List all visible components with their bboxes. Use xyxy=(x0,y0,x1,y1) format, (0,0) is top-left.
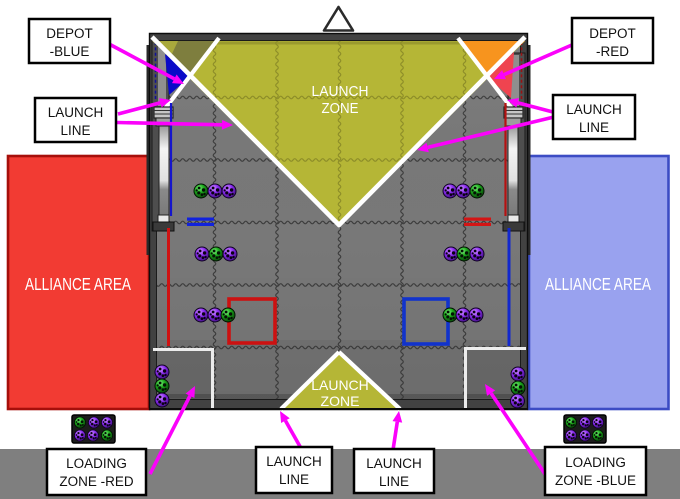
svg-text:LAUNCH: LAUNCH xyxy=(366,456,422,471)
svg-text:LAUNCH: LAUNCH xyxy=(48,105,104,120)
svg-text:ZONE: ZONE xyxy=(321,393,360,409)
svg-text:LINE: LINE xyxy=(60,123,90,138)
svg-text:LOADING: LOADING xyxy=(66,456,127,471)
svg-text:ALLIANCE AREA: ALLIANCE AREA xyxy=(25,274,131,294)
svg-text:ZONE: ZONE xyxy=(322,101,359,117)
svg-text:ZONE -BLUE: ZONE -BLUE xyxy=(555,473,636,488)
svg-text:DEPOT: DEPOT xyxy=(46,26,93,41)
svg-text:LINE: LINE xyxy=(379,474,409,489)
svg-text:LAUNCH: LAUNCH xyxy=(566,102,622,117)
svg-text:LAUNCH: LAUNCH xyxy=(312,84,369,100)
svg-text:LINE: LINE xyxy=(579,120,609,135)
svg-text:LAUNCH: LAUNCH xyxy=(311,377,369,393)
svg-text:ZONE -RED: ZONE -RED xyxy=(59,474,134,489)
svg-text:LOADING: LOADING xyxy=(565,455,626,470)
svg-text:LINE: LINE xyxy=(279,472,309,487)
svg-text:DEPOT: DEPOT xyxy=(589,26,636,41)
svg-text:LAUNCH: LAUNCH xyxy=(266,454,322,469)
svg-text:-BLUE: -BLUE xyxy=(50,44,90,59)
svg-text:ALLIANCE AREA: ALLIANCE AREA xyxy=(545,274,651,294)
svg-text:-RED: -RED xyxy=(596,44,629,59)
